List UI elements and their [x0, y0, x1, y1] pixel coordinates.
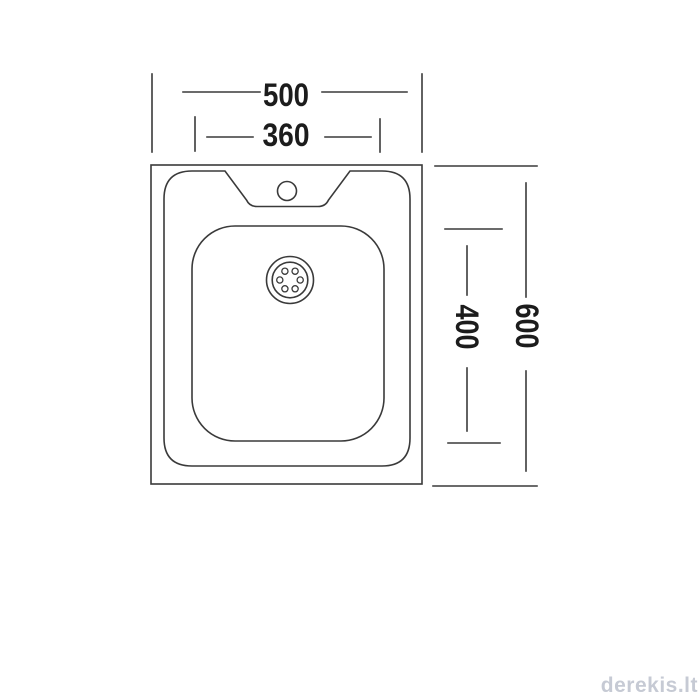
- drain-hole: [282, 268, 288, 274]
- drain-hole: [292, 286, 298, 292]
- drain-outer-ring: [267, 257, 314, 304]
- drain-hole: [277, 277, 283, 283]
- basin-outline: [192, 226, 384, 441]
- drain-hole: [297, 277, 303, 283]
- drain: [267, 257, 314, 304]
- drain-hole: [282, 286, 288, 292]
- drain-hole: [292, 268, 298, 274]
- dim-label-basin-width: 360: [263, 117, 310, 153]
- dim-label-overall-width: 500: [263, 77, 309, 113]
- technical-drawing: 500 360 600 400: [0, 0, 700, 700]
- sink-deck-outline: [164, 171, 410, 466]
- sink-dimension-diagram: 500 360 600 400 derekis.lt: [0, 0, 700, 700]
- drawing-lines: [151, 74, 537, 486]
- faucet-hole: [278, 182, 297, 201]
- dim-label-overall-depth: 600: [509, 304, 545, 349]
- watermark: derekis.lt: [601, 674, 698, 698]
- dim-label-basin-depth: 400: [449, 305, 485, 350]
- drain-holes: [277, 268, 304, 292]
- dimension-labels: 500 360 600 400: [263, 77, 546, 350]
- drain-inner-ring: [272, 262, 308, 298]
